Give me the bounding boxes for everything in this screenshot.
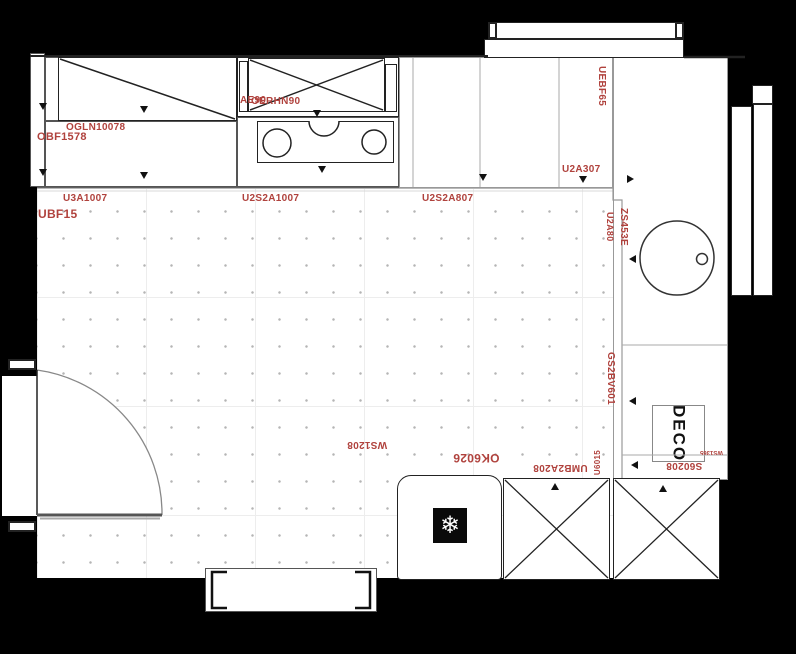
wall-cabinet-diagonal[interactable] bbox=[58, 57, 237, 121]
label-umb2a208: UMB2A208 bbox=[533, 462, 588, 472]
door-jamb-top bbox=[8, 359, 36, 370]
label-s60208: S60208 bbox=[666, 460, 702, 470]
label-u2s2a807: U2S2A807 bbox=[422, 194, 473, 204]
kitchen-floor-plan: ❄ DECO bbox=[0, 0, 796, 654]
bench-window-bottom bbox=[205, 568, 377, 612]
label-obf1578: OBF1578 bbox=[37, 132, 87, 143]
window-right-cap bbox=[752, 85, 773, 104]
door-opening bbox=[2, 376, 37, 516]
window-top-jamb-left bbox=[488, 22, 497, 39]
label-hood-b: OERHN90 bbox=[251, 97, 300, 107]
label-u2s2a1007: U2S2A1007 bbox=[242, 194, 299, 204]
base-cabinet-x1[interactable] bbox=[503, 478, 610, 580]
door-jamb-bottom bbox=[8, 521, 36, 532]
left-filler-small[interactable] bbox=[45, 57, 59, 121]
label-u3a1007: U3A1007 bbox=[63, 194, 107, 204]
freezer-icon: ❄ bbox=[433, 508, 467, 543]
window-top bbox=[488, 22, 684, 39]
label-uebf65: UEBF65 bbox=[596, 66, 606, 106]
left-filler-panel[interactable] bbox=[30, 53, 45, 187]
label-u2a80: U2A80 bbox=[605, 212, 614, 242]
base-cabinet-x2[interactable] bbox=[613, 478, 720, 580]
label-ogln10078: OGLN10078 bbox=[66, 123, 125, 133]
window-top-sill bbox=[484, 39, 684, 58]
label-zs453e: ZS453E bbox=[618, 208, 628, 246]
label-ok6026: OK6026 bbox=[453, 452, 500, 464]
label-gs2bv601: GS2BV601 bbox=[605, 352, 615, 405]
cooktop[interactable] bbox=[257, 121, 394, 163]
window-right-inner bbox=[753, 104, 773, 296]
label-ubf15: UBF15 bbox=[38, 208, 78, 220]
deco-label: DECO bbox=[669, 405, 689, 462]
window-top-jamb-right bbox=[675, 22, 684, 39]
label-ws1208: WS1208 bbox=[347, 439, 387, 449]
label-ws1365: WS1365 bbox=[700, 449, 723, 455]
window-right-outer bbox=[731, 106, 752, 296]
label-u6015: U6015 bbox=[594, 450, 602, 475]
deco-unit[interactable]: DECO bbox=[652, 405, 705, 462]
hood-filler-right bbox=[385, 64, 397, 112]
label-u2a307: U2A307 bbox=[562, 165, 601, 175]
